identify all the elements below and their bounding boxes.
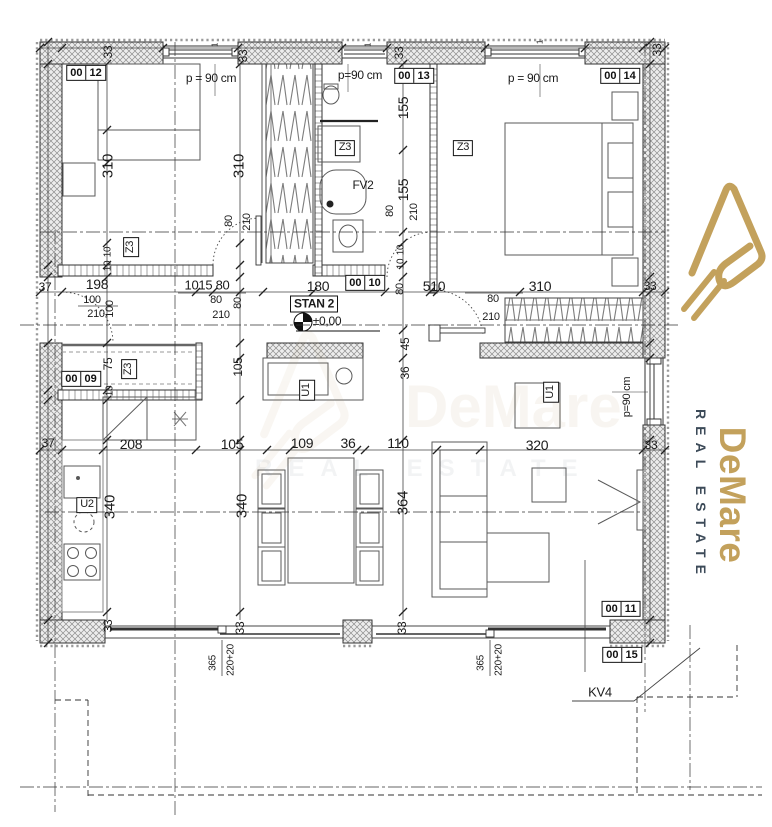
kv4-leader — [572, 648, 700, 701]
watermark-tagline: REAL ESTATE — [255, 455, 594, 483]
nightstand — [612, 258, 638, 286]
appliance-mark — [172, 412, 188, 426]
wardrobes — [266, 64, 643, 342]
floorplan-page: DeMare REAL ESTATE DeMare REAL ESTATE 00… — [0, 0, 772, 827]
terrace-outline — [55, 645, 762, 797]
floor-plan-drawing — [0, 0, 772, 827]
washing-machine — [318, 126, 360, 162]
brand-name: DeMare — [711, 345, 753, 645]
windows — [163, 46, 663, 425]
boiler — [74, 512, 94, 532]
tv — [598, 470, 643, 530]
nightstand — [612, 92, 638, 120]
brand-logo-text: DeMare REAL ESTATE — [687, 345, 753, 645]
bathtub — [320, 170, 366, 214]
level-marker — [294, 313, 380, 331]
watermark-name: DeMare — [405, 372, 622, 441]
sink-unit — [64, 466, 100, 498]
sink — [336, 368, 352, 384]
brand-tagline: REAL ESTATE — [693, 345, 709, 645]
brand-logo-mark — [684, 186, 762, 318]
nightstand — [63, 163, 95, 196]
bed-1 — [98, 64, 200, 160]
chairs — [258, 470, 383, 585]
